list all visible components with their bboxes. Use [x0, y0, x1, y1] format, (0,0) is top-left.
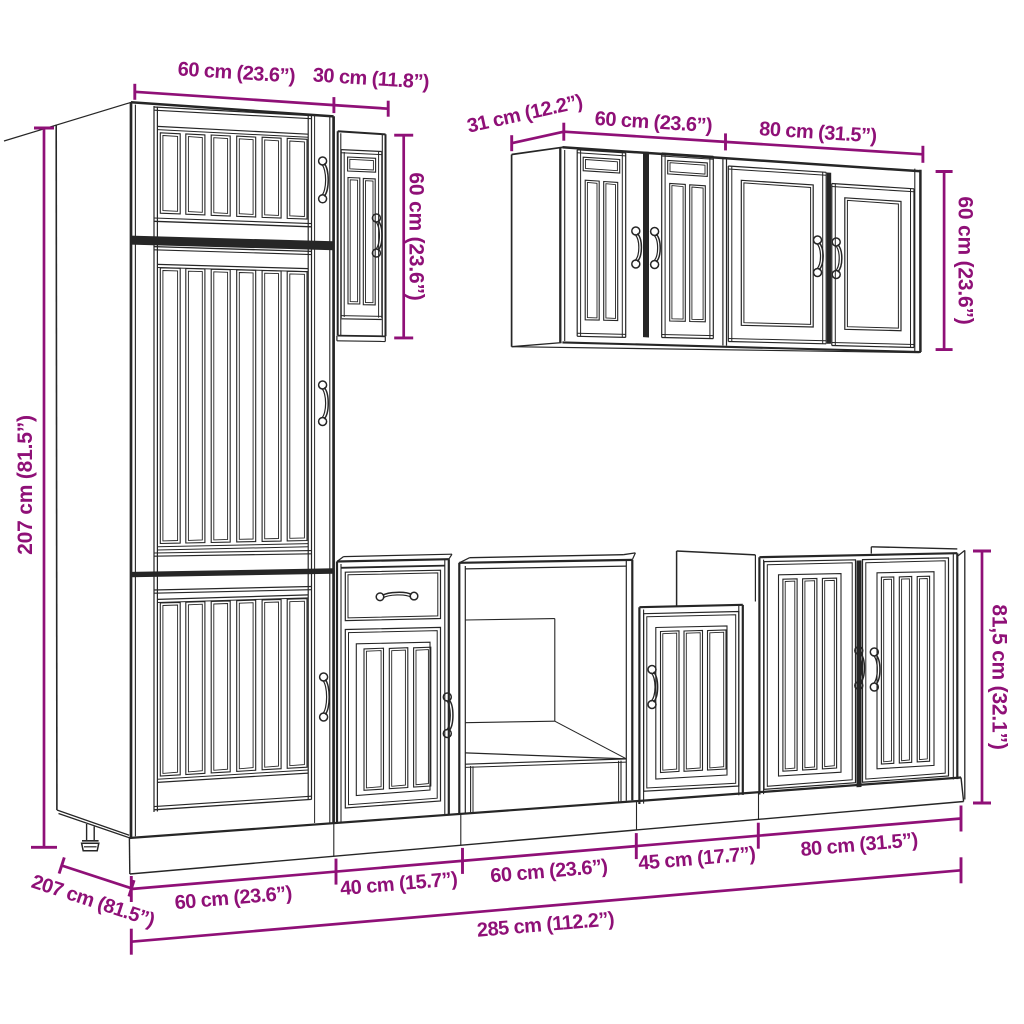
svg-text:60 cm (23.6”): 60 cm (23.6”) [405, 172, 428, 300]
svg-text:207 cm (81.5”): 207 cm (81.5”) [14, 415, 37, 555]
svg-text:81,5 cm (32.1”): 81,5 cm (32.1”) [988, 604, 1011, 749]
svg-text:60 cm (23.6”): 60 cm (23.6”) [954, 196, 977, 324]
